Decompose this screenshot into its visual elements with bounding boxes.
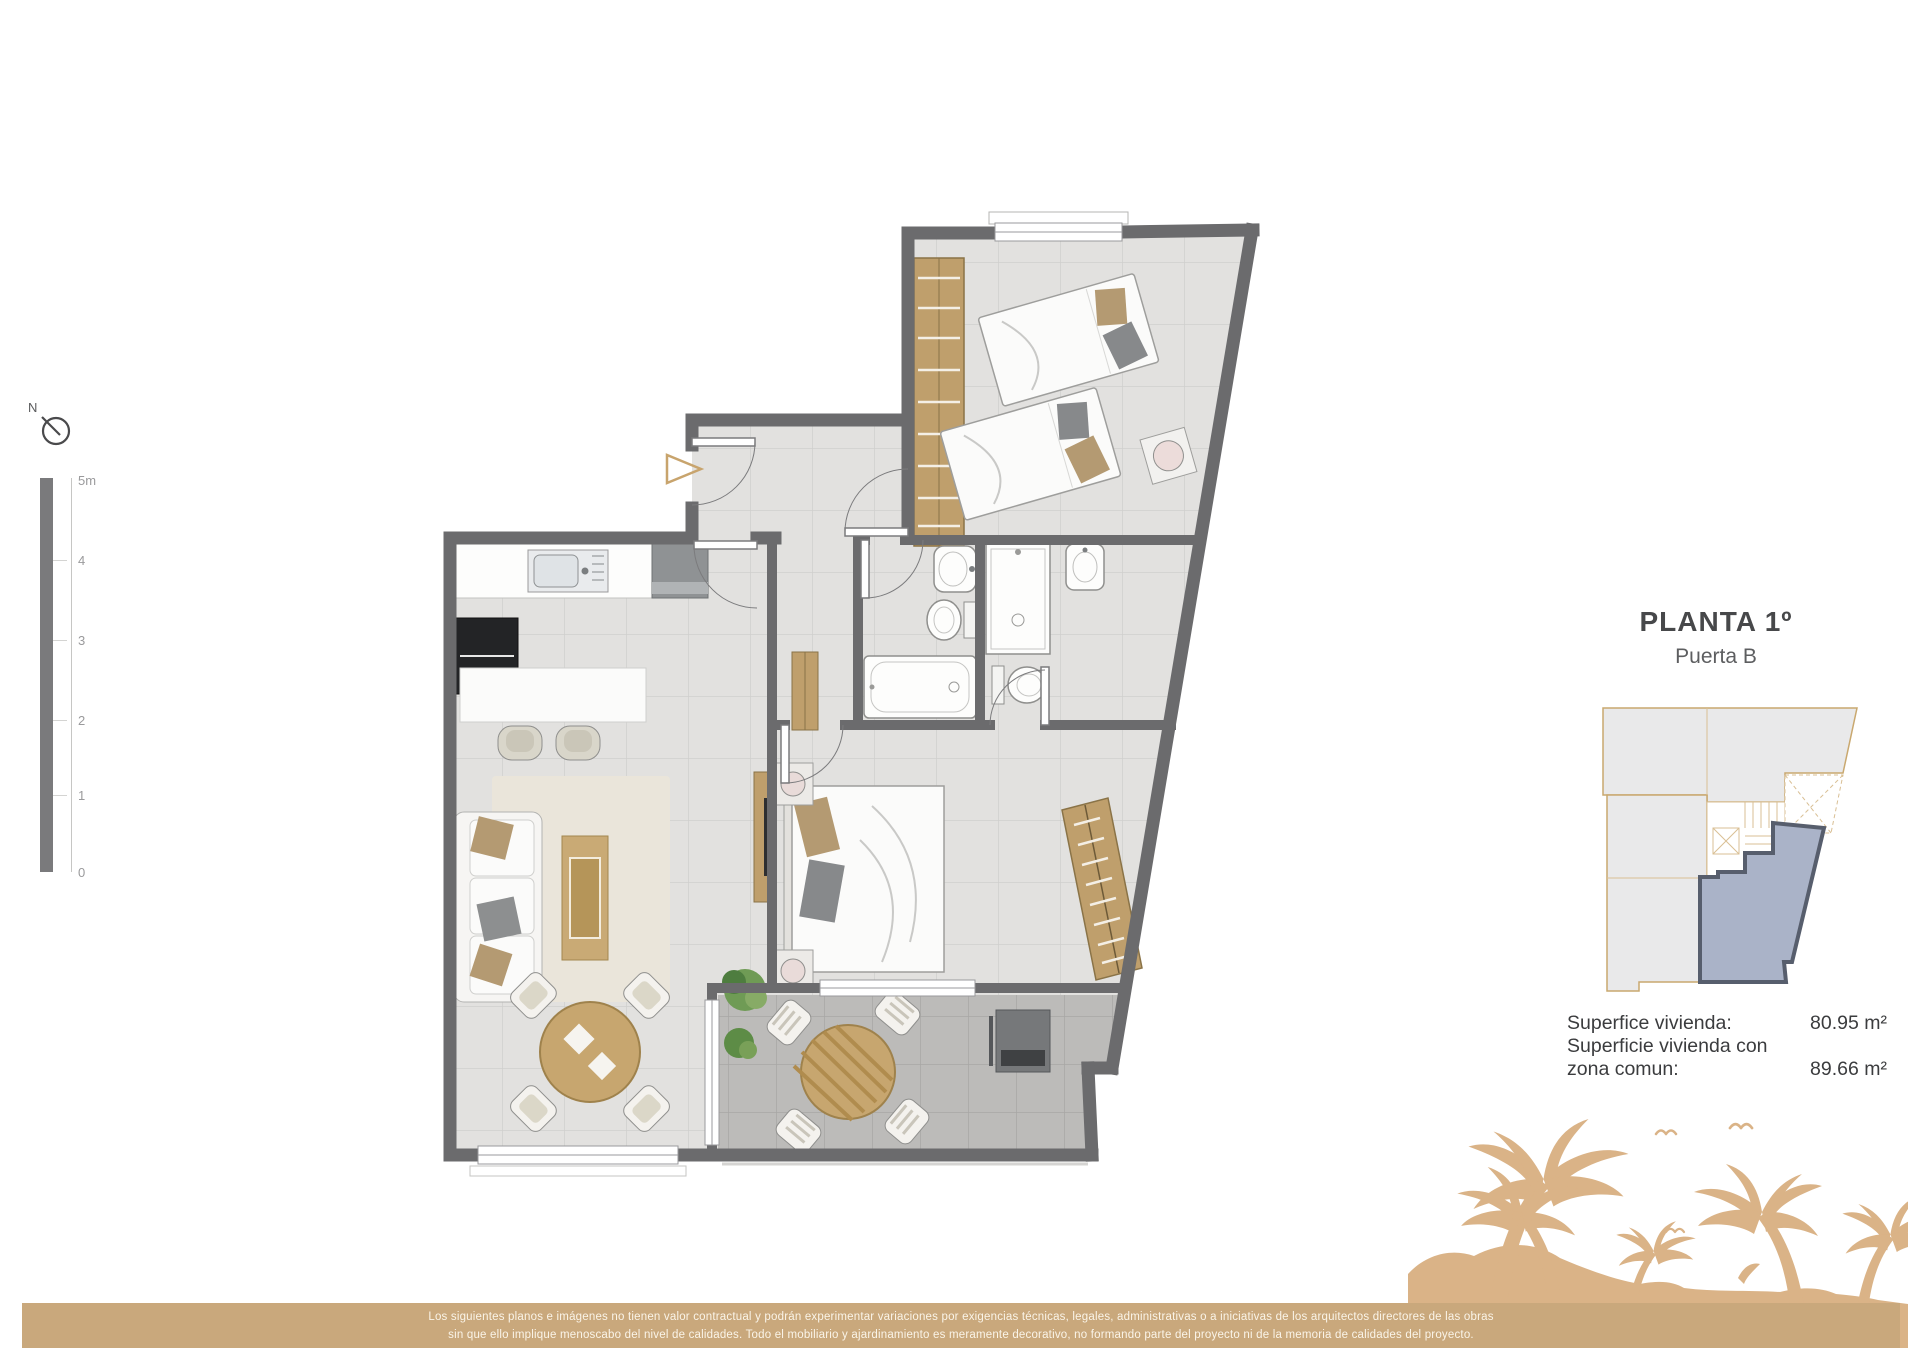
- brochure-page: N 5m 4 3 2 1 0: [0, 0, 1920, 1370]
- sofa: [454, 812, 542, 1002]
- bathtub: [864, 656, 976, 718]
- north-indicator: N: [20, 398, 90, 458]
- nightstand: [773, 763, 813, 805]
- dining-table: [540, 1002, 640, 1102]
- kitchen-island: [460, 668, 646, 722]
- disclaimer-line-1: Los siguientes planos e imágenes no tien…: [22, 1308, 1900, 1326]
- scale-bar-strip: [53, 478, 72, 872]
- scale-bar: 5m 4 3 2 1 0: [36, 478, 106, 878]
- scale-label-2: 2: [78, 713, 85, 728]
- scale-label-4: 4: [78, 553, 85, 568]
- area-label-2b: zona comun:: [1567, 1058, 1679, 1081]
- coffee-table: [562, 836, 608, 960]
- north-label: N: [28, 400, 37, 415]
- toilet: [927, 600, 976, 640]
- area-value-2: 89.66 m²: [1810, 1058, 1887, 1081]
- bbq-grill: [991, 1010, 1050, 1072]
- scale-label-3: 3: [78, 633, 85, 648]
- shower: [986, 544, 1050, 654]
- scale-bar-rule: [40, 478, 53, 872]
- toilet: [992, 666, 1046, 704]
- wardrobe: [914, 258, 964, 546]
- key-plan: [1595, 700, 1895, 995]
- floor-plan: [440, 200, 1280, 1230]
- area-label-1: Superfice vivienda:: [1567, 1012, 1732, 1035]
- area-label-2a: Superficie vivienda con: [1567, 1035, 1768, 1058]
- disclaimer-bar: Los siguientes planos e imágenes no tien…: [22, 1303, 1900, 1348]
- area-value-1: 80.95 m²: [1810, 1012, 1887, 1035]
- sink: [1066, 544, 1104, 590]
- disclaimer-line-2: sin que ello implique menoscabo del nive…: [22, 1326, 1900, 1344]
- plan-title-block: PLANTA 1º Puerta B: [1585, 606, 1847, 669]
- page-subtitle: Puerta B: [1585, 645, 1847, 669]
- scale-label-1: 1: [78, 788, 85, 803]
- page-title: PLANTA 1º: [1585, 606, 1847, 638]
- scale-label-5m: 5m: [78, 473, 96, 488]
- sink: [934, 546, 976, 592]
- scale-label-0: 0: [78, 865, 85, 880]
- surface-areas: Superfice vivienda: 80.95 m² Superficie …: [1567, 1012, 1887, 1081]
